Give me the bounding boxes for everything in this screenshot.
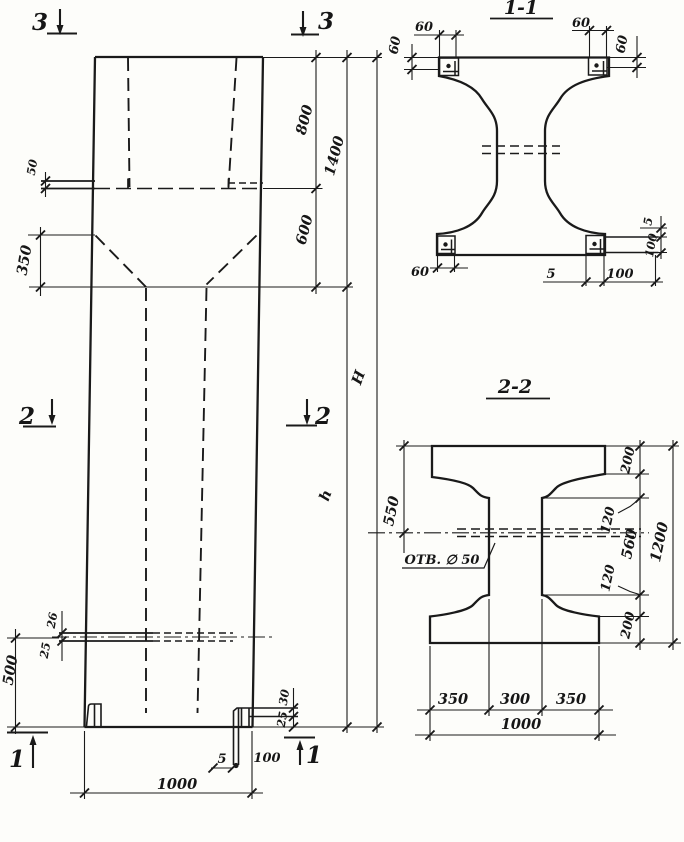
dim-1-1-right-5: 5 [640, 216, 655, 226]
dim-2-2-top-200: 200 [618, 445, 639, 476]
marker-3-left: 3 [32, 9, 48, 36]
column-drawing: 3 3 2 2 1 1 50 350 800 1400 600 H h 26 2… [0, 0, 684, 842]
dim-2-2-taper-bottom-120: 120 [598, 563, 618, 593]
marker-3-right: 3 [318, 8, 334, 35]
dim-2-2-width-mid-300: 300 [500, 691, 530, 708]
dim-neck-600: 600 [293, 213, 317, 247]
section-1-1-view: 1-1 60 60 60 60 60 5 100 5 100 [387, 0, 667, 287]
dim-2-2-width-left-350: 350 [438, 691, 468, 708]
anchor-dot [592, 242, 596, 246]
dim-1-1-bottom-left-60: 60 [411, 265, 429, 280]
dim-2-2-width-1000: 1000 [501, 716, 541, 733]
dim-ledge-50: 50 [24, 158, 41, 176]
dim-top-800: 800 [293, 103, 317, 137]
section-1-1-dimension-ticks [408, 26, 666, 287]
section-1-1-title: 1-1 [504, 0, 538, 19]
marker-2-left: 2 [18, 403, 35, 430]
dim-1-1-bottom-100: 100 [606, 267, 633, 282]
marker-2-right: 2 [314, 403, 331, 430]
section-markers: 3 3 2 2 1 1 [7, 8, 334, 773]
section-1-1-outline [437, 58, 609, 256]
drawing-sheet: 3 3 2 2 1 1 50 350 800 1400 600 H h 26 2… [0, 0, 684, 842]
dim-1-1-top-left-60: 60 [415, 20, 433, 35]
section-2-2-outline [430, 446, 605, 643]
dim-plate-30: 30 [276, 688, 293, 706]
dim-base-100: 100 [253, 751, 280, 766]
dim-2-2-left-550: 550 [380, 494, 403, 527]
marker-1-right: 1 [306, 742, 322, 769]
dim-plate-25: 25 [274, 710, 291, 729]
dim-taper-350: 350 [14, 244, 36, 277]
dim-1-1-top-right-60: 60 [572, 16, 590, 31]
dim-2-2-bottom-200: 200 [618, 610, 639, 641]
hidden-lines-3 [153, 183, 263, 641]
dim-2-2-taper-top-120: 120 [598, 505, 618, 535]
anchor-dot [443, 242, 447, 246]
section-1-1-dimension-lines [404, 26, 667, 286]
dim-1-1-right-60: 60 [614, 34, 632, 54]
dim-shaft-h: h [316, 488, 336, 504]
column-outline [85, 57, 264, 727]
section-2-2-view: 2-2 ОТВ. ∅ 50 550 200 120 560 1200 120 2… [368, 376, 681, 741]
dim-1-1-left-60: 60 [387, 35, 405, 55]
dim-2-2-width-right-350: 350 [556, 691, 586, 708]
elevation-view: 3 3 2 2 1 1 50 350 800 1400 600 H h 26 2… [0, 8, 384, 799]
marker-lines [7, 9, 319, 768]
dim-1-1-bottom-5: 5 [546, 267, 555, 282]
hidden-lines [96, 58, 257, 713]
section-1-1-hole-dashes [482, 146, 560, 154]
anchor-dot [446, 64, 450, 68]
hole-label: ОТВ. ∅ 50 [405, 553, 480, 568]
dim-head-1400: 1400 [321, 134, 348, 177]
dim-slot-25: 25 [37, 641, 54, 660]
section-2-2-title: 2-2 [497, 376, 532, 398]
dim-width-1000: 1000 [157, 776, 197, 793]
dim-2-2-height-1200: 1200 [647, 521, 672, 564]
anchor-dot [594, 63, 598, 67]
dim-slot-500: 500 [0, 654, 22, 687]
dim-base-5: 5 [217, 752, 226, 767]
dim-total-H: H [348, 367, 369, 388]
dim-1-1-right-100: 100 [642, 232, 660, 258]
marker-1-left: 1 [9, 746, 25, 773]
dim-slot-26: 26 [44, 611, 61, 630]
